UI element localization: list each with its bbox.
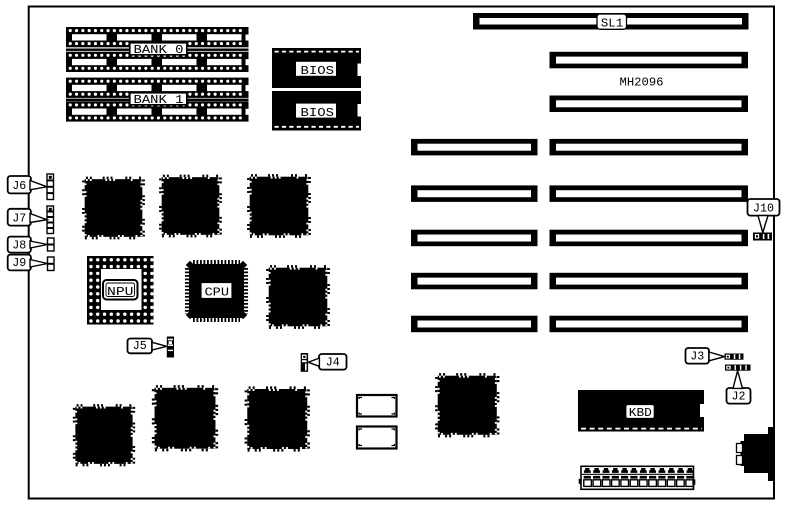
svg-text:J10: J10 [753, 202, 774, 215]
svg-text:J7: J7 [12, 212, 26, 225]
svg-text:CPU: CPU [205, 286, 230, 300]
svg-text:J2: J2 [732, 390, 746, 403]
svg-text:BANK 0: BANK 0 [134, 43, 184, 57]
svg-text:SL1: SL1 [601, 17, 624, 31]
svg-text:J3: J3 [690, 350, 704, 363]
svg-text:J8: J8 [12, 239, 26, 252]
svg-text:J4: J4 [326, 356, 340, 369]
svg-text:KBD: KBD [629, 406, 652, 420]
svg-text:J5: J5 [133, 340, 147, 353]
svg-text:J6: J6 [12, 180, 26, 193]
svg-text:NPU: NPU [107, 285, 134, 299]
svg-text:J9: J9 [12, 257, 26, 270]
svg-text:BIOS: BIOS [301, 106, 335, 120]
svg-text:BANK 1: BANK 1 [134, 93, 184, 107]
svg-text:MH2096: MH2096 [620, 75, 664, 89]
svg-text:BIOS: BIOS [301, 64, 335, 78]
